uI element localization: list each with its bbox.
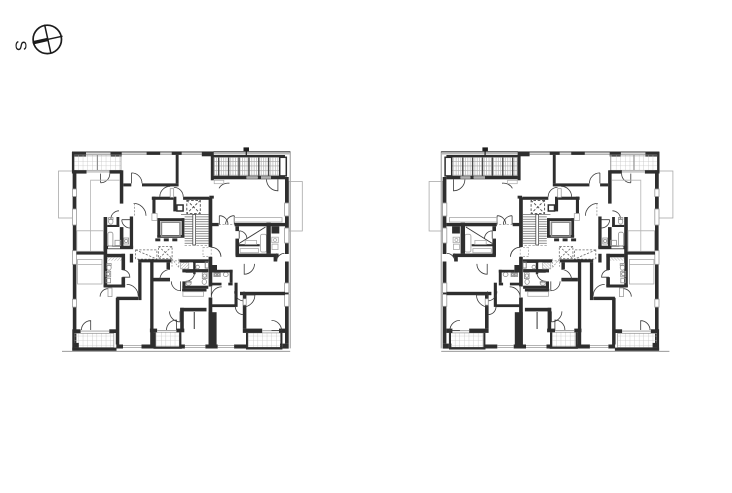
- svg-text:S: S: [12, 40, 29, 51]
